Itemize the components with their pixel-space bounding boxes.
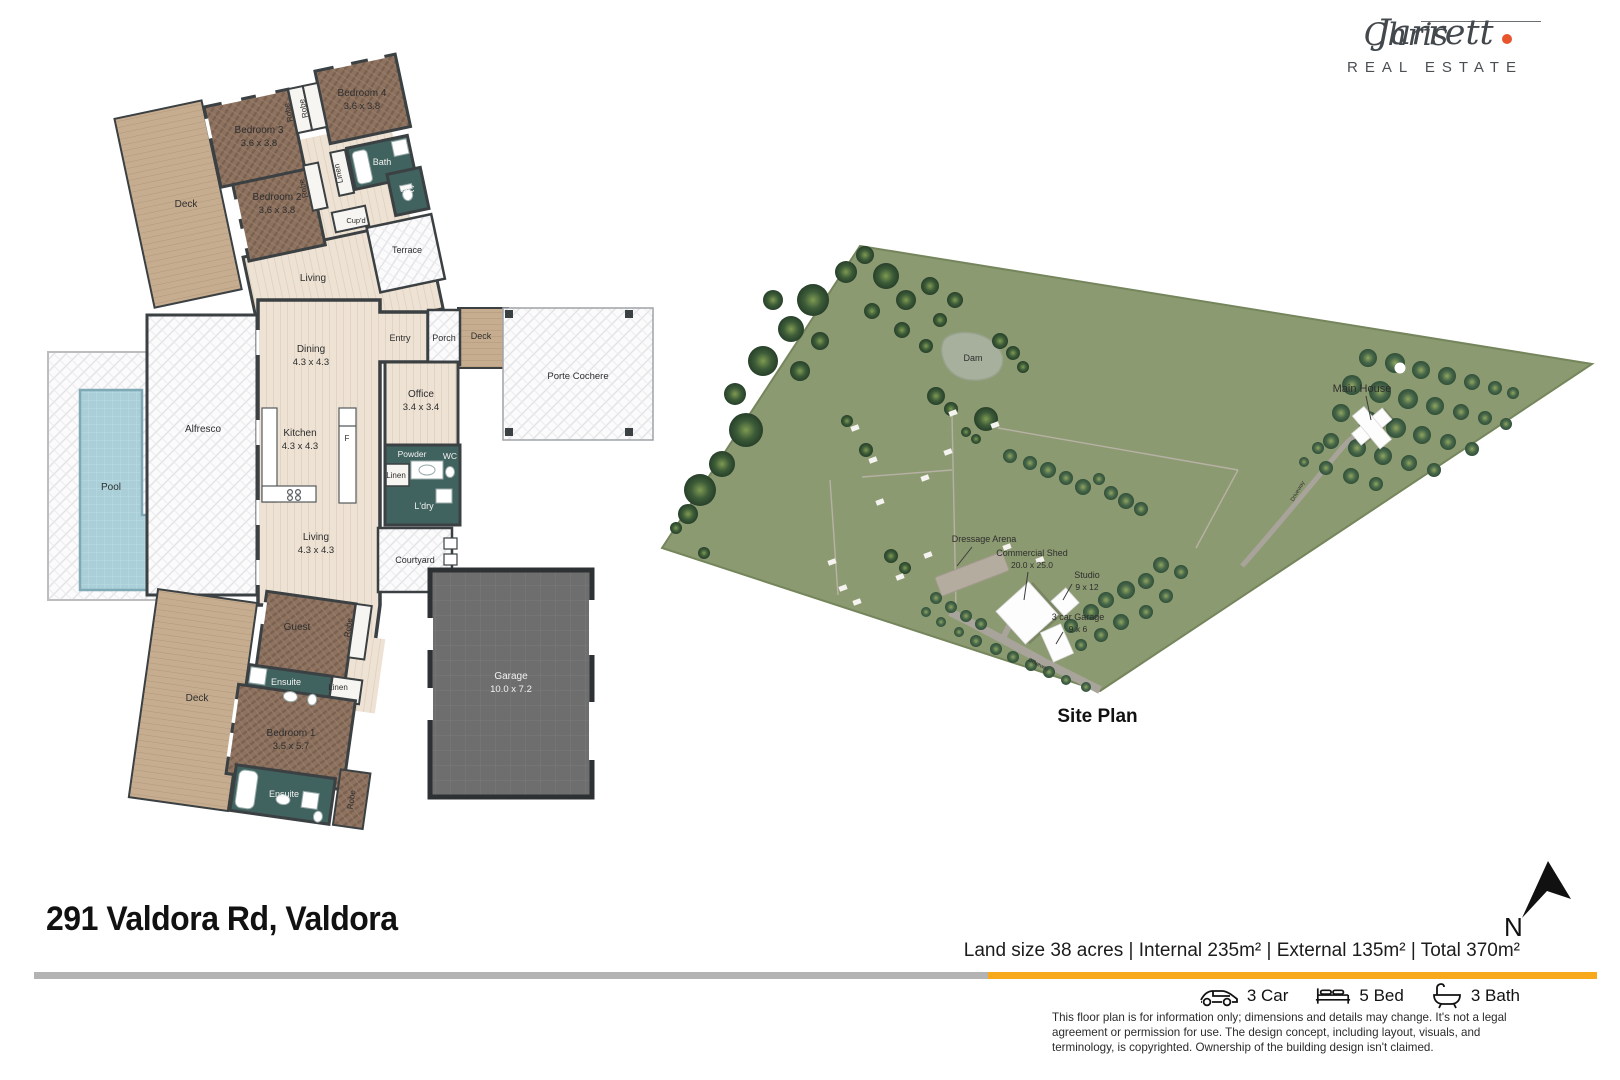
- terrace-label: Terrace: [392, 245, 422, 255]
- divider-bar-orange: [988, 972, 1597, 979]
- tree-icon: [1369, 477, 1383, 491]
- living-center-label: Living: [303, 532, 329, 543]
- courtyard-unit: [444, 554, 457, 565]
- linen-label: Linen: [386, 471, 406, 480]
- stat-bed: 5 Bed: [1314, 983, 1403, 1009]
- tree-icon: [1098, 592, 1114, 608]
- tree-icon: [1401, 455, 1417, 471]
- alfresco: [147, 315, 257, 595]
- tree-icon: [1007, 651, 1019, 663]
- bath-icon: [1430, 982, 1464, 1010]
- tree-icon: [1478, 411, 1492, 425]
- tree-icon: [797, 284, 829, 316]
- tree-icon: [835, 261, 857, 283]
- bedroom2-label: Bedroom 2: [253, 192, 302, 203]
- powder-label: Powder: [398, 449, 427, 459]
- tree-icon: [1312, 442, 1324, 454]
- deck-small-label: Deck: [471, 331, 492, 341]
- stat-bath-label: 3 Bath: [1471, 986, 1520, 1006]
- tree-icon: [1075, 479, 1091, 495]
- courtyard-unit: [444, 538, 457, 549]
- bedroom2-label: 3.6 x 3.8: [259, 205, 295, 216]
- property-address: 291 Valdora Rd, Valdora: [46, 900, 398, 939]
- tree-icon: [1134, 502, 1148, 516]
- tree-icon: [894, 322, 910, 338]
- office-label: Office: [408, 389, 434, 400]
- tree-icon: [1017, 361, 1029, 373]
- garage-label: Garage: [494, 671, 528, 682]
- floor-plan: DeckBedroom 33.6 x 3.8Bedroom 43.6 x 3.8…: [40, 50, 660, 860]
- water-tank: [1395, 363, 1406, 374]
- ensuite-label: Ensuite: [271, 677, 301, 687]
- tree-icon: [1359, 349, 1377, 367]
- tree-icon: [1006, 346, 1020, 360]
- tree-icon: [763, 290, 783, 310]
- tree-icon: [1500, 418, 1512, 430]
- tree-icon: [1093, 473, 1105, 485]
- tree-icon: [1413, 426, 1431, 444]
- north-indicator: N: [1480, 845, 1580, 945]
- commercial-shed-label: 20.0 x 25.0: [1011, 560, 1053, 570]
- tree-icon: [864, 303, 880, 319]
- stat-car-label: 3 Car: [1247, 986, 1289, 1006]
- dam-label: Dam: [963, 353, 982, 363]
- wc-label: WC: [443, 451, 457, 461]
- studio-label: 9 x 12: [1075, 582, 1098, 592]
- tree-icon: [1440, 434, 1456, 450]
- tree-icon: [1332, 404, 1350, 422]
- logo-last-name: Jarrett: [1376, 16, 1493, 51]
- shower: [391, 139, 409, 157]
- tree-icon: [884, 549, 898, 563]
- tree-icon: [961, 427, 971, 437]
- tree-icon: [670, 522, 682, 534]
- tree-icon: [896, 290, 916, 310]
- tree-icon: [933, 313, 947, 327]
- living-center-label: 4.3 x 4.3: [298, 545, 334, 556]
- toilet: [446, 467, 455, 478]
- linen-label: Linen: [328, 683, 348, 692]
- tree-icon: [790, 361, 810, 381]
- alfresco-label: Alfresco: [185, 424, 222, 435]
- tree-icon: [859, 443, 873, 457]
- tree-icon: [927, 387, 945, 405]
- bath-label: Bath: [373, 157, 392, 167]
- tree-icon: [841, 415, 853, 427]
- cupd-label: Cup'd: [346, 216, 365, 225]
- garage-3car-label: 3 car Garage: [1052, 612, 1105, 622]
- tree-icon: [684, 474, 716, 506]
- entry-label: Entry: [389, 333, 411, 343]
- fridge-pantry: [339, 408, 356, 503]
- logo-dot-icon: [1502, 34, 1512, 44]
- deck-upper-label: Deck: [175, 199, 199, 210]
- disclaimer-text: This floor plan is for information only;…: [1052, 1010, 1522, 1055]
- office-label: 3.4 x 3.4: [403, 402, 439, 413]
- tree-icon: [992, 333, 1008, 349]
- north-label: N: [1504, 912, 1523, 942]
- dining-label: Dining: [297, 344, 325, 355]
- tree-icon: [1159, 589, 1173, 603]
- porte-cochere-label: Porte Cochere: [547, 371, 608, 382]
- tree-icon: [1398, 389, 1418, 409]
- bedroom4-label: 3.6 x 3.8: [344, 101, 380, 112]
- tree-icon: [1139, 605, 1153, 619]
- washer: [436, 489, 452, 503]
- car-icon: [1198, 983, 1240, 1009]
- garage-3car-label: 9 x 6: [1069, 624, 1088, 634]
- tree-icon: [960, 610, 972, 622]
- fridge-label: F: [345, 434, 350, 443]
- tree-icon: [1465, 442, 1479, 456]
- tree-icon: [1426, 397, 1444, 415]
- shower: [301, 791, 319, 809]
- tree-icon: [1174, 565, 1188, 579]
- tree-icon: [921, 607, 931, 617]
- tree-icon: [919, 339, 933, 353]
- tree-icon: [698, 547, 710, 559]
- bed-icon: [1314, 983, 1352, 1009]
- shower: [249, 667, 267, 685]
- stat-bath: 3 Bath: [1430, 982, 1520, 1010]
- porch-label: Porch: [432, 333, 456, 343]
- tree-icon: [947, 292, 963, 308]
- tree-icon: [748, 346, 778, 376]
- tree-icon: [1488, 381, 1502, 395]
- tree-icon: [1113, 614, 1129, 630]
- dressage-arena-label: Dressage Arena: [952, 534, 1017, 544]
- living-upper-label: Living: [300, 273, 326, 284]
- bedroom1-label: Bedroom 1: [267, 728, 316, 739]
- guest-label: Guest: [284, 622, 311, 633]
- tree-icon: [1343, 468, 1359, 484]
- agency-logo: Chris Jarrett REAL ESTATE: [1325, 20, 1545, 76]
- tree-icon: [1118, 493, 1134, 509]
- tree-icon: [1104, 486, 1118, 500]
- tree-icon: [873, 263, 899, 289]
- tree-icon: [1507, 387, 1519, 399]
- tree-icon: [899, 562, 911, 574]
- ldry-label: L'dry: [414, 501, 434, 511]
- tree-icon: [729, 413, 763, 447]
- logo-tagline: REAL ESTATE: [1325, 59, 1545, 76]
- site-plan: DamMain HouseDressage ArenaCommercial Sh…: [650, 230, 1600, 710]
- pool-label: Pool: [101, 482, 121, 493]
- tree-icon: [1059, 471, 1073, 485]
- stat-car: 3 Car: [1198, 983, 1289, 1009]
- kitchen-label: 4.3 x 4.3: [282, 441, 318, 452]
- tree-icon: [724, 383, 746, 405]
- tree-icon: [1075, 639, 1087, 651]
- tree-icon: [1023, 456, 1037, 470]
- tree-icon: [1061, 675, 1071, 685]
- tree-icon: [1299, 457, 1309, 467]
- tree-icon: [945, 601, 957, 613]
- tree-icon: [970, 635, 982, 647]
- bedroom1-label: 3.5 x 5.7: [273, 741, 309, 752]
- bedroom3-label: Bedroom 3: [235, 125, 284, 136]
- tree-icon: [1003, 449, 1017, 463]
- page: { "colors": { "accent_orange": "#F7A81B"…: [0, 0, 1620, 1080]
- tree-icon: [1094, 628, 1108, 642]
- tree-icon: [1412, 361, 1430, 379]
- bedroom3-label: 3.6 x 3.8: [241, 138, 277, 149]
- tree-icon: [1464, 374, 1480, 390]
- tree-icon: [1153, 557, 1169, 573]
- tree-icon: [1117, 581, 1135, 599]
- north-arrow-icon: [1522, 861, 1571, 918]
- tree-icon: [1438, 367, 1456, 385]
- stats-row: 3 Car 5 Bed 3 Bath: [1150, 982, 1520, 1010]
- main-house-label: Main House: [1333, 383, 1392, 395]
- tree-icon: [1081, 682, 1091, 692]
- tree-icon: [1427, 463, 1441, 477]
- tree-icon: [936, 617, 946, 627]
- ensuite-label: Ensuite: [269, 789, 299, 799]
- tree-icon: [811, 332, 829, 350]
- tree-icon: [1374, 447, 1392, 465]
- tree-icon: [778, 316, 804, 342]
- tree-icon: [709, 451, 735, 477]
- site-plan-title: Site Plan: [1010, 706, 1185, 728]
- tree-icon: [856, 246, 874, 264]
- commercial-shed-label: Commercial Shed: [996, 548, 1068, 558]
- land-size-summary: Land size 38 acres | Internal 235m² | Ex…: [900, 940, 1520, 962]
- divider-bar-gray: [34, 972, 988, 979]
- tree-icon: [1138, 573, 1154, 589]
- tree-icon: [971, 434, 981, 444]
- tree-icon: [930, 592, 942, 604]
- wc-label: WC: [400, 184, 415, 194]
- tree-icon: [921, 277, 939, 295]
- tree-icon: [975, 618, 987, 630]
- tree-icon: [1323, 433, 1339, 449]
- tree-icon: [990, 643, 1002, 655]
- studio-label: Studio: [1074, 570, 1100, 580]
- deck-lower-label: Deck: [186, 693, 210, 704]
- garage-label: 10.0 x 7.2: [490, 684, 532, 695]
- tree-icon: [1040, 462, 1056, 478]
- sink: [419, 465, 435, 475]
- dining-label: 4.3 x 4.3: [293, 357, 329, 368]
- tree-icon: [1453, 404, 1469, 420]
- tree-icon: [954, 627, 964, 637]
- bedroom4-label: Bedroom 4: [338, 88, 387, 99]
- tree-icon: [1319, 461, 1333, 475]
- kitchen-label: Kitchen: [283, 428, 316, 439]
- tree-icon: [678, 504, 698, 524]
- courtyard-label: Courtyard: [395, 555, 435, 565]
- stat-bed-label: 5 Bed: [1359, 986, 1403, 1006]
